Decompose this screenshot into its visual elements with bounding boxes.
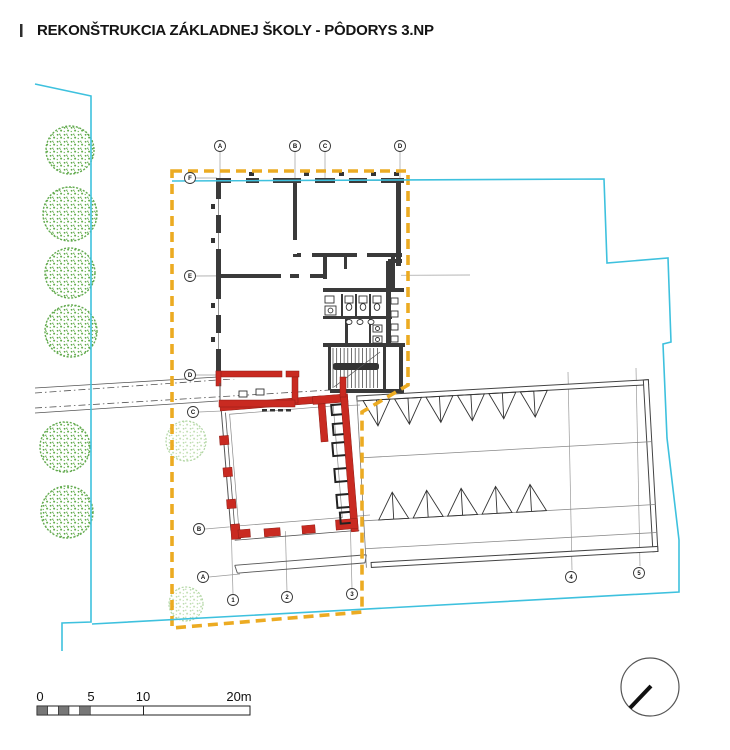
svg-text:D: D [188,373,193,379]
lower-building [217,393,367,573]
grid-bubble: C [188,407,199,418]
grid-bubble: D [395,141,406,152]
grid-bubble: 5 [634,568,645,579]
trees [40,126,206,621]
svg-text:A: A [201,575,206,581]
svg-text:B: B [197,527,202,533]
terrace-edge [235,555,367,574]
grid-bubble: A [215,141,226,152]
hall-floor-lines [360,442,657,549]
grid-bubble: 4 [566,572,577,583]
svg-text:F: F [188,176,192,182]
svg-text:C: C [191,410,196,416]
svg-text:A: A [218,144,223,150]
svg-text:C: C [323,144,328,150]
grid-bubble: D [185,370,196,381]
scale-label-20m: 20m [226,689,251,704]
entry-column [239,391,247,397]
svg-text:E: E [188,274,192,280]
stair-landing [333,363,379,370]
grid-bubble: C [320,141,331,152]
grid-bubble: 2 [282,592,293,603]
tree [40,126,97,538]
scale-label-5: 5 [87,689,94,704]
grid-bubble: A [198,572,209,583]
entry-column [256,389,264,395]
scale-bar: 0 5 10 20m [36,689,251,715]
north-needle-icon [630,686,651,708]
north-indicator [621,658,679,716]
grid-bubble: E [185,271,196,282]
grid-bubble: B [290,141,301,152]
svg-text:B: B [293,144,298,150]
roof-trusses-bottom [377,484,546,520]
drawing-title: REKONŠTRUKCIA ZÁKLADNEJ ŠKOLY - PÔDORYS … [37,22,434,39]
floor-plan-canvas: A B C D F E D C [0,0,730,750]
grid-bubble: B [194,524,205,535]
hall-building [357,380,658,568]
frame-tick [20,24,23,37]
scale-label-0: 0 [36,689,43,704]
grid-bubble: 3 [347,589,358,600]
grid-bubble: F [185,173,196,184]
svg-text:D: D [398,144,403,150]
scale-label-10: 10 [136,689,150,704]
upper-building [211,172,405,393]
grid-bubble: 1 [228,595,239,606]
